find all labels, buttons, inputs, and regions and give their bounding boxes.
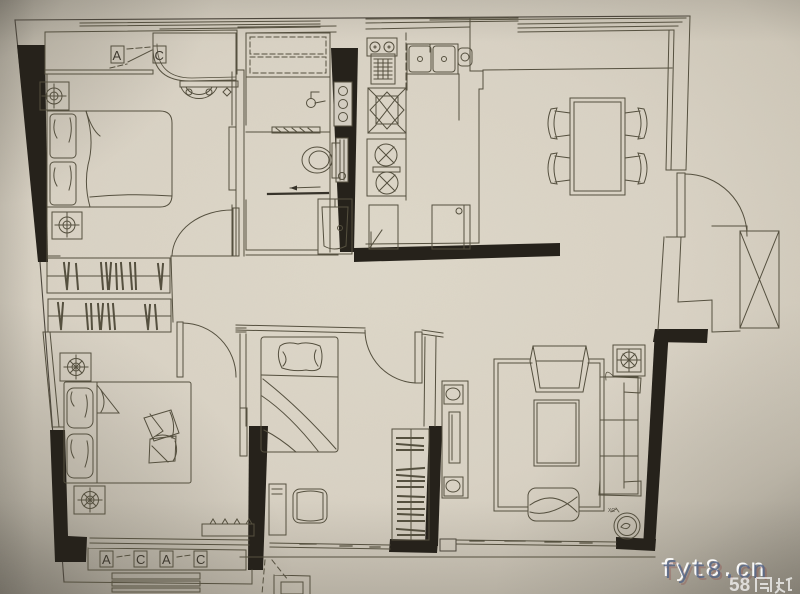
svg-text:fyt8.cn: fyt8.cn xyxy=(662,557,767,586)
svg-text:XC: XC xyxy=(608,508,615,514)
svg-text:C: C xyxy=(136,552,145,567)
svg-text:C: C xyxy=(155,48,164,63)
svg-text:A: A xyxy=(113,48,122,63)
svg-text:C: C xyxy=(196,552,205,567)
svg-text:A: A xyxy=(162,552,171,567)
svg-text:A: A xyxy=(102,552,111,567)
svg-text:58: 58 xyxy=(729,575,750,594)
